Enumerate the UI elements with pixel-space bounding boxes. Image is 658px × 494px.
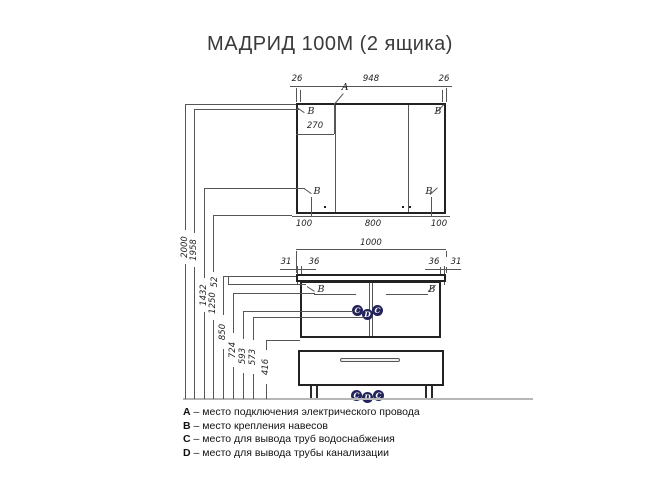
dim-ext [334, 103, 335, 134]
height-connector [185, 104, 296, 105]
height-connector [213, 215, 292, 216]
dim-label: 36 [304, 257, 324, 267]
dim-label: 270 [301, 121, 329, 131]
height-connector [194, 109, 299, 110]
mirror-cabinet-outline [296, 103, 446, 214]
legend-text: – место крепления навесов [194, 420, 328, 432]
legend-row-b: B – место крепления навесов [183, 420, 420, 434]
callout-b-label: B [305, 106, 317, 117]
dim-line-mirror-bottom [292, 216, 450, 217]
page-title: МАДРИД 100М (2 ящика) [110, 33, 550, 56]
legend-text: – место для вывода трубы канализации [194, 447, 390, 459]
dim-line-offset-right [425, 269, 461, 270]
legend-text: – место подключения электрического прово… [194, 406, 420, 418]
legend-row-a: A – место подключения электрического про… [183, 406, 420, 420]
dim-ext [300, 90, 301, 102]
door-handle-dot [402, 206, 404, 208]
door-handle-dot [409, 206, 411, 208]
drawer-handle [340, 358, 400, 362]
callout-a-label: A [339, 82, 351, 93]
callout-b-label: B [432, 106, 444, 117]
height-connector [204, 188, 305, 189]
dim-ext [446, 88, 447, 102]
dim-label: 1000 [351, 238, 391, 248]
door-handle-dot [324, 206, 326, 208]
legend: A – место подключения электрического про… [183, 406, 420, 460]
dim-label: 800 [353, 219, 393, 229]
dim-line-mirror-top [290, 86, 452, 87]
legend-key: C [183, 433, 191, 445]
legend-key: D [183, 447, 191, 459]
fastening-rail-right [386, 294, 428, 295]
mirror-door-divider-left [335, 105, 336, 212]
height-connector [228, 284, 306, 285]
height-connector [253, 317, 364, 318]
dim-label: 100 [290, 219, 318, 229]
dim-label: 31 [276, 257, 296, 267]
legend-text: – место для вывода труб водоснабжения [194, 433, 395, 445]
dim-ext [442, 90, 443, 102]
dim-ext [431, 197, 432, 216]
dim-label: 948 [351, 74, 391, 84]
drawer-unit-outline [298, 350, 444, 386]
dim-line-1000 [296, 249, 446, 250]
height-connector [233, 293, 315, 294]
gap-label: 52 [209, 272, 221, 292]
technical-drawing: МАДРИД 100М (2 ящика) 26 948 26 A 270 B … [0, 0, 658, 494]
dim-label: 100 [425, 219, 453, 229]
callout-b-label: B [311, 186, 323, 197]
dim-ext [296, 88, 297, 102]
height-connector [266, 340, 300, 341]
dim-label: 26 [430, 74, 458, 84]
dim-line-offset-left [280, 269, 316, 270]
height-label: 416 [260, 350, 272, 384]
dim-line-270 [296, 134, 334, 135]
dim-label: 31 [446, 257, 466, 267]
dim-label: 36 [424, 257, 444, 267]
dim-label: 26 [283, 74, 311, 84]
legend-key: B [183, 420, 191, 432]
mirror-door-divider-right [408, 105, 409, 212]
legend-row-c: C – место для вывода труб водоснабжения [183, 433, 420, 447]
height-connector [243, 311, 353, 312]
height-connector [223, 276, 296, 277]
height-label: 573 [247, 340, 259, 374]
height-label: 1958 [188, 233, 200, 267]
legend-key: A [183, 406, 191, 418]
callout-b-label: B [315, 284, 327, 295]
marker-c: C [372, 305, 383, 316]
legend-row-d: D – место для вывода трубы канализации [183, 447, 420, 461]
dim-ext [311, 197, 312, 216]
floor-line [183, 398, 533, 400]
